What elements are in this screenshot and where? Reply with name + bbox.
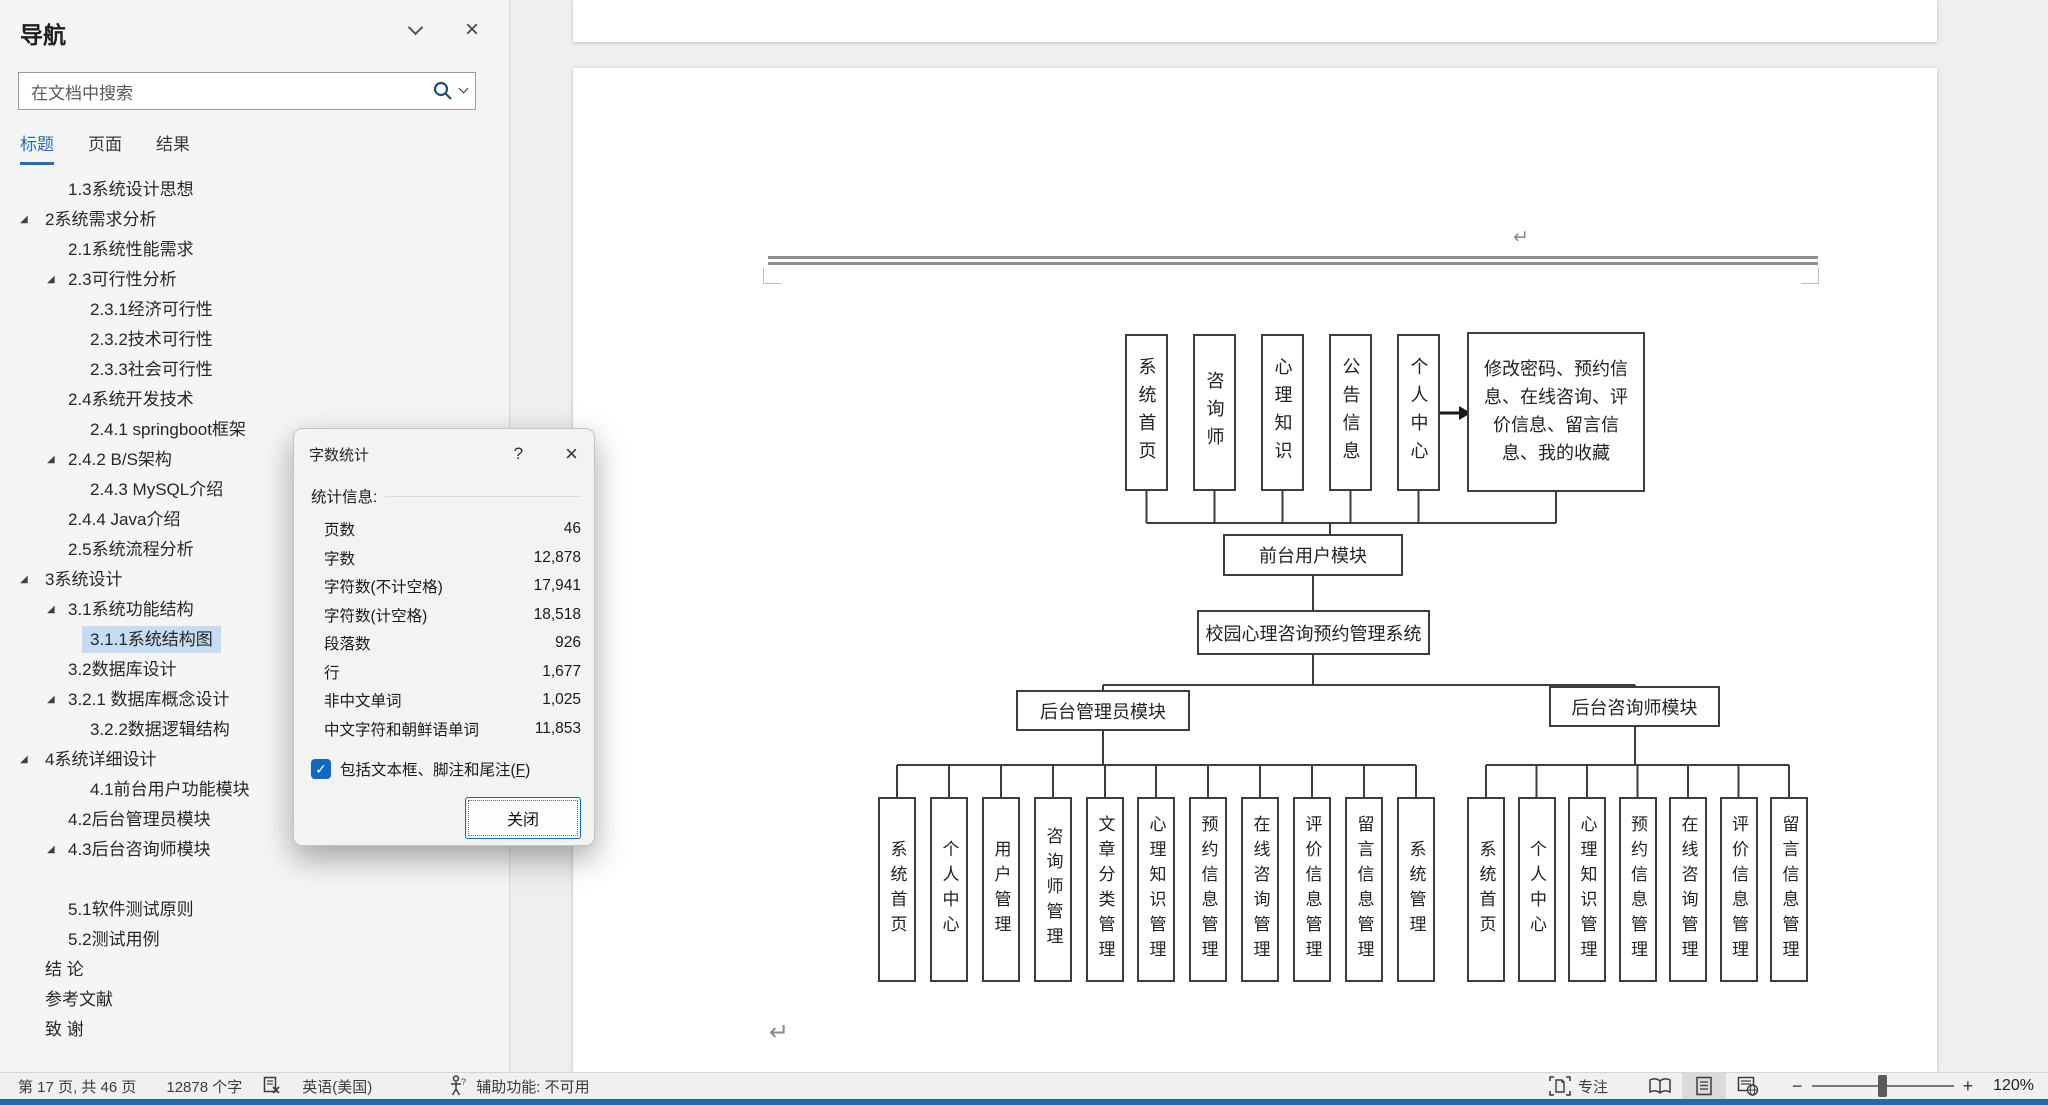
zoom-out-button[interactable]: − bbox=[1792, 1076, 1803, 1097]
dialog-body: 统计信息: 页数46字数12,878字符数(不计空格)17,941字符数(计空格… bbox=[294, 479, 594, 839]
nav-item-label: 5.1软件测试原则 bbox=[68, 900, 194, 919]
nav-item-label: 致 谢 bbox=[45, 1020, 84, 1039]
stat-label: 行 bbox=[324, 661, 340, 683]
nav-item-label: 2.4系统开发技术 bbox=[68, 390, 194, 409]
statistics-section-label: 统计信息: bbox=[311, 485, 581, 507]
section-label-text: 统计信息: bbox=[311, 485, 377, 507]
nav-item-4[interactable]: 2.3.1经济可行性 bbox=[0, 295, 509, 325]
stat-row-4: 段落数926 bbox=[311, 629, 581, 658]
focus-label: 专注 bbox=[1578, 1076, 1608, 1097]
dialog-title: 字数统计 bbox=[309, 444, 369, 465]
diagram-box-admin-2[interactable]: 用户管理 bbox=[982, 797, 1020, 982]
status-bar: 第 17 页, 共 46 页 12878 个字 英语(美国) ? bbox=[0, 1072, 2048, 1099]
stat-row-6: 非中文单词1,025 bbox=[311, 686, 581, 715]
nav-pane-header: 导航 × bbox=[0, 0, 509, 56]
chevron-down-icon[interactable] bbox=[408, 20, 424, 36]
search-icon[interactable] bbox=[432, 80, 454, 102]
nav-item-label: 3.1系统功能结构 bbox=[68, 600, 194, 619]
diagram-box-counselor-6[interactable]: 留言信息管理 bbox=[1770, 797, 1808, 982]
help-icon[interactable]: ? bbox=[514, 444, 523, 464]
diagram-box-counselor-4[interactable]: 在线咨询管理 bbox=[1669, 797, 1707, 982]
section-rule bbox=[385, 496, 581, 497]
nav-item-label: 4系统详细设计 bbox=[45, 750, 156, 769]
nav-item-24[interactable]: 5.1软件测试原则 bbox=[0, 895, 509, 925]
nav-item-label: 2.4.4 Java介绍 bbox=[68, 510, 180, 529]
nav-item-label: 2.3.1经济可行性 bbox=[90, 300, 213, 319]
stat-row-3: 字符数(计空格)18,518 bbox=[311, 601, 581, 630]
nav-item-label: 2.4.2 B/S架构 bbox=[68, 450, 172, 469]
nav-item-25[interactable]: 5.2测试用例 bbox=[0, 925, 509, 955]
nav-tabs: 标题页面结果 bbox=[20, 130, 509, 165]
svg-text:?: ? bbox=[461, 1077, 466, 1087]
nav-item-label: 3.2.2数据逻辑结构 bbox=[90, 720, 230, 739]
diagram-box-admin-6[interactable]: 预约信息管理 bbox=[1189, 797, 1227, 982]
stat-value: 18,518 bbox=[534, 606, 581, 624]
nav-item-label: 4.2后台管理员模块 bbox=[68, 810, 211, 829]
diagram-box-counselor-3[interactable]: 预约信息管理 bbox=[1619, 797, 1657, 982]
expand-triangle-icon[interactable]: ◢ bbox=[20, 565, 28, 595]
word-app-window: 导航 × 在文档中搜索 标题页面结果 1.3系统设计思想◢2系统需求分析2.1系… bbox=[0, 0, 2048, 1105]
page-indicator[interactable]: 第 17 页, 共 46 页 bbox=[18, 1076, 136, 1097]
word-count-indicator[interactable]: 12878 个字 bbox=[166, 1076, 242, 1097]
diagram-box-admin-5[interactable]: 心理知识管理 bbox=[1137, 797, 1175, 982]
language-indicator[interactable]: 英语(美国) bbox=[302, 1076, 372, 1097]
read-mode-button[interactable] bbox=[1638, 1073, 1682, 1100]
diagram-box-front-2[interactable]: 心理知识 bbox=[1261, 334, 1304, 491]
focus-mode-button[interactable]: 专注 bbox=[1549, 1076, 1608, 1097]
nav-item-label: 4.1前台用户功能模块 bbox=[90, 780, 250, 799]
accessibility-status[interactable]: 辅助功能: 不可用 bbox=[476, 1076, 589, 1097]
stat-row-5: 行1,677 bbox=[311, 658, 581, 687]
diagram-box-counselor-1[interactable]: 个人中心 bbox=[1518, 797, 1556, 982]
paragraph-mark: ↵ bbox=[769, 1018, 789, 1047]
word-count-dialog: 字数统计 ? × 统计信息: 页数46字数12,878字符数(不计空格)17,9… bbox=[293, 428, 595, 846]
diagram-box-counselor-0[interactable]: 系统首页 bbox=[1467, 797, 1505, 982]
diagram-box-admin-3[interactable]: 咨询师管理 bbox=[1034, 797, 1072, 982]
proofing-errors-icon[interactable] bbox=[262, 1076, 282, 1096]
diagram-box-front-1[interactable]: 咨询师 bbox=[1193, 334, 1236, 491]
stat-value: 12,878 bbox=[534, 549, 581, 567]
close-button[interactable]: 关闭 bbox=[465, 797, 581, 839]
expand-triangle-icon[interactable]: ◢ bbox=[47, 265, 55, 295]
document-page[interactable]: ↵ 系统首页咨询师心理知识公告信息个人中心修改密码、预约信息、在线咨询、评价信息… bbox=[573, 68, 1937, 1073]
expand-triangle-icon[interactable]: ◢ bbox=[47, 835, 55, 865]
nav-item-label: 3系统设计 bbox=[45, 570, 122, 589]
diagram-box-front-4[interactable]: 个人中心 bbox=[1397, 334, 1440, 491]
search-options-chevron-icon[interactable] bbox=[459, 84, 469, 94]
nav-item-label: 2.1系统性能需求 bbox=[68, 240, 194, 259]
checkbox-label: 包括文本框、脚注和尾注(F) bbox=[340, 758, 530, 780]
stat-row-0: 页数46 bbox=[311, 515, 581, 544]
search-input[interactable]: 在文档中搜索 bbox=[18, 72, 476, 110]
stat-value: 17,941 bbox=[534, 577, 581, 595]
diagram-box-admin-10[interactable]: 系统管理 bbox=[1397, 797, 1435, 982]
stat-value: 46 bbox=[564, 520, 581, 538]
expand-triangle-icon[interactable]: ◢ bbox=[20, 205, 28, 235]
web-layout-button[interactable] bbox=[1726, 1073, 1770, 1100]
nav-item-label: 结 论 bbox=[45, 960, 84, 979]
nav-item-1[interactable]: ◢2系统需求分析 bbox=[0, 205, 509, 235]
expand-triangle-icon[interactable]: ◢ bbox=[47, 685, 55, 715]
diagram-admin-module[interactable]: 后台管理员模块 bbox=[1016, 690, 1190, 731]
nav-tab-0[interactable]: 标题 bbox=[20, 130, 54, 165]
nav-item-26[interactable]: 结 论 bbox=[0, 955, 509, 985]
zoom-slider-thumb[interactable] bbox=[1878, 1075, 1887, 1097]
previous-page-bottom bbox=[573, 0, 1937, 42]
print-layout-button[interactable] bbox=[1682, 1073, 1726, 1100]
nav-item-label: 5.2测试用例 bbox=[68, 930, 160, 949]
nav-pane-title: 导航 bbox=[20, 16, 66, 50]
document-canvas: ↵ 系统首页咨询师心理知识公告信息个人中心修改密码、预约信息、在线咨询、评价信息… bbox=[511, 0, 2048, 1073]
close-button-label: 关闭 bbox=[468, 800, 578, 836]
search-placeholder: 在文档中搜索 bbox=[31, 79, 133, 104]
diagram-root-box[interactable]: 校园心理咨询预约管理系统 bbox=[1197, 610, 1430, 655]
nav-item-27[interactable]: 参考文献 bbox=[0, 985, 509, 1015]
nav-item-label: 2.4.3 MySQL介绍 bbox=[90, 480, 223, 499]
nav-close-icon[interactable]: × bbox=[465, 20, 479, 40]
stat-label: 字符数(计空格) bbox=[324, 604, 427, 626]
nav-item-5[interactable]: 2.3.2技术可行性 bbox=[0, 325, 509, 355]
diagram-box-front-3[interactable]: 公告信息 bbox=[1329, 334, 1372, 491]
nav-item-label: 2.5系统流程分析 bbox=[68, 540, 194, 559]
focus-icon bbox=[1549, 1076, 1571, 1096]
stat-row-7: 中文字符和朝鲜语单词11,853 bbox=[311, 715, 581, 744]
dialog-titlebar: 字数统计 ? × bbox=[294, 429, 594, 479]
diagram-front-module[interactable]: 前台用户模块 bbox=[1223, 534, 1403, 576]
window-bottom-accent bbox=[0, 1099, 2048, 1105]
diagram-box-admin-8[interactable]: 评价信息管理 bbox=[1293, 797, 1331, 982]
nav-item-0[interactable]: 1.3系统设计思想 bbox=[0, 175, 509, 205]
include-textboxes-row: ✓ 包括文本框、脚注和尾注(F) bbox=[311, 757, 581, 781]
nav-item-3[interactable]: ◢2.3可行性分析 bbox=[0, 265, 509, 295]
expand-triangle-icon[interactable]: ◢ bbox=[47, 445, 55, 475]
stat-value: 1,025 bbox=[542, 691, 581, 709]
nav-item-label: 2.4.1 springboot框架 bbox=[90, 420, 246, 439]
stat-row-2: 字符数(不计空格)17,941 bbox=[311, 572, 581, 601]
diagram-box-counselor-5[interactable]: 评价信息管理 bbox=[1720, 797, 1758, 982]
diagram-box-counselor-2[interactable]: 心理知识管理 bbox=[1568, 797, 1606, 982]
stat-value: 926 bbox=[555, 634, 581, 652]
nav-item-7[interactable]: 2.4系统开发技术 bbox=[0, 385, 509, 415]
dialog-close-icon[interactable]: × bbox=[565, 445, 578, 463]
zoom-slider[interactable] bbox=[1812, 1075, 1954, 1097]
expand-triangle-icon[interactable]: ◢ bbox=[47, 595, 55, 625]
nav-item-2[interactable]: 2.1系统性能需求 bbox=[0, 235, 509, 265]
nav-item-label: 参考文献 bbox=[45, 990, 113, 1009]
nav-item-label: 1.3系统设计思想 bbox=[68, 180, 194, 199]
nav-item-label: 2.3.2技术可行性 bbox=[90, 330, 213, 349]
diagram-box-admin-9[interactable]: 留言信息管理 bbox=[1345, 797, 1383, 982]
nav-item-label: 3.1.1系统结构图 bbox=[82, 626, 221, 653]
stat-label: 中文字符和朝鲜语单词 bbox=[324, 718, 479, 740]
nav-item-28[interactable]: 致 谢 bbox=[0, 1015, 509, 1045]
nav-tab-2[interactable]: 结果 bbox=[156, 130, 190, 165]
nav-item-label: 2系统需求分析 bbox=[45, 210, 156, 229]
zoom-percentage[interactable]: 120% bbox=[1993, 1077, 2034, 1095]
expand-triangle-icon[interactable]: ◢ bbox=[20, 745, 28, 775]
zoom-in-button[interactable]: + bbox=[1963, 1076, 1974, 1097]
stat-value: 11,853 bbox=[535, 720, 581, 738]
stat-row-1: 字数12,878 bbox=[311, 544, 581, 573]
stat-label: 页数 bbox=[324, 518, 355, 540]
nav-item-label: 3.2.1 数据库概念设计 bbox=[68, 690, 230, 709]
stat-label: 字符数(不计空格) bbox=[324, 575, 443, 597]
diagram-note-box[interactable]: 修改密码、预约信息、在线咨询、评价信息、留言信息、我的收藏 bbox=[1467, 332, 1645, 492]
diagram-box-front-0[interactable]: 系统首页 bbox=[1125, 334, 1168, 491]
diagram-counselor-module[interactable]: 后台咨询师模块 bbox=[1549, 686, 1720, 727]
accessibility-icon: ? bbox=[448, 1075, 468, 1097]
checkbox-include-textboxes[interactable]: ✓ bbox=[311, 759, 331, 779]
diagram-box-admin-1[interactable]: 个人中心 bbox=[930, 797, 968, 982]
diagram-box-admin-0[interactable]: 系统首页 bbox=[878, 797, 916, 982]
nav-item-label: 2.3可行性分析 bbox=[68, 270, 177, 289]
nav-item-label: 4.3后台咨询师模块 bbox=[68, 840, 211, 859]
nav-item-label: 3.2数据库设计 bbox=[68, 660, 177, 679]
nav-tab-1[interactable]: 页面 bbox=[88, 130, 122, 165]
diagram-box-admin-7[interactable]: 在线咨询管理 bbox=[1241, 797, 1279, 982]
stat-label: 非中文单词 bbox=[324, 689, 402, 711]
stat-label: 段落数 bbox=[324, 632, 371, 654]
stat-label: 字数 bbox=[324, 547, 355, 569]
nav-item-spacer bbox=[0, 865, 509, 895]
diagram-box-admin-4[interactable]: 文章分类管理 bbox=[1086, 797, 1124, 982]
nav-item-label: 2.3.3社会可行性 bbox=[90, 360, 213, 379]
stat-value: 1,677 bbox=[542, 663, 581, 681]
statistics-list: 页数46字数12,878字符数(不计空格)17,941字符数(计空格)18,51… bbox=[311, 515, 581, 743]
nav-item-6[interactable]: 2.3.3社会可行性 bbox=[0, 355, 509, 385]
